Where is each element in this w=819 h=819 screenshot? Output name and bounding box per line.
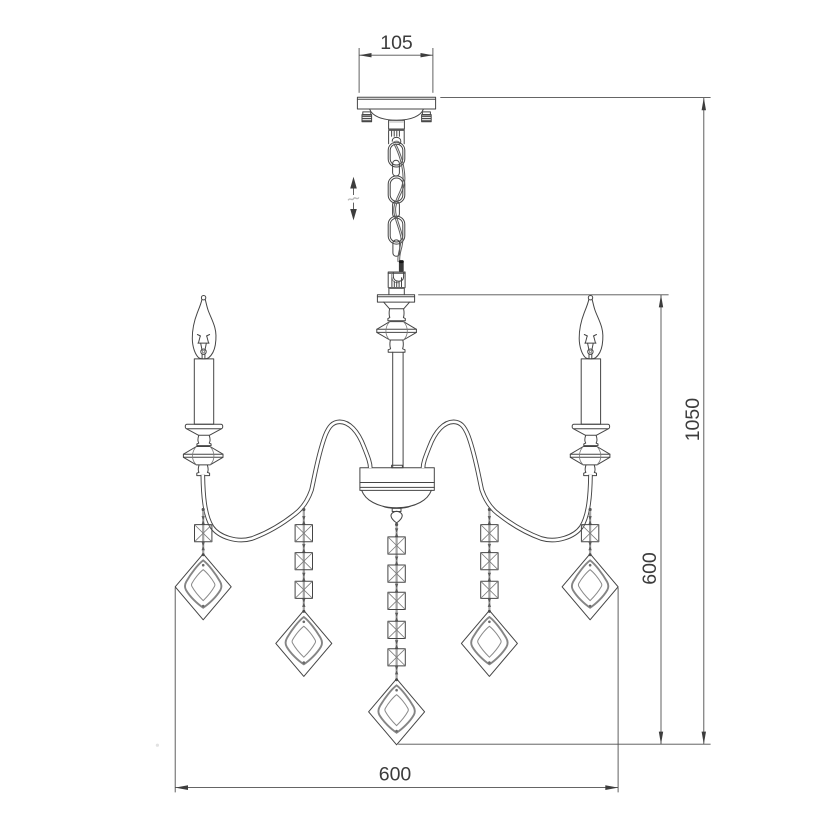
svg-text:1050: 1050 (682, 398, 704, 442)
svg-text:600: 600 (379, 764, 412, 786)
svg-text:105: 105 (380, 32, 413, 54)
svg-text:600: 600 (639, 552, 661, 585)
